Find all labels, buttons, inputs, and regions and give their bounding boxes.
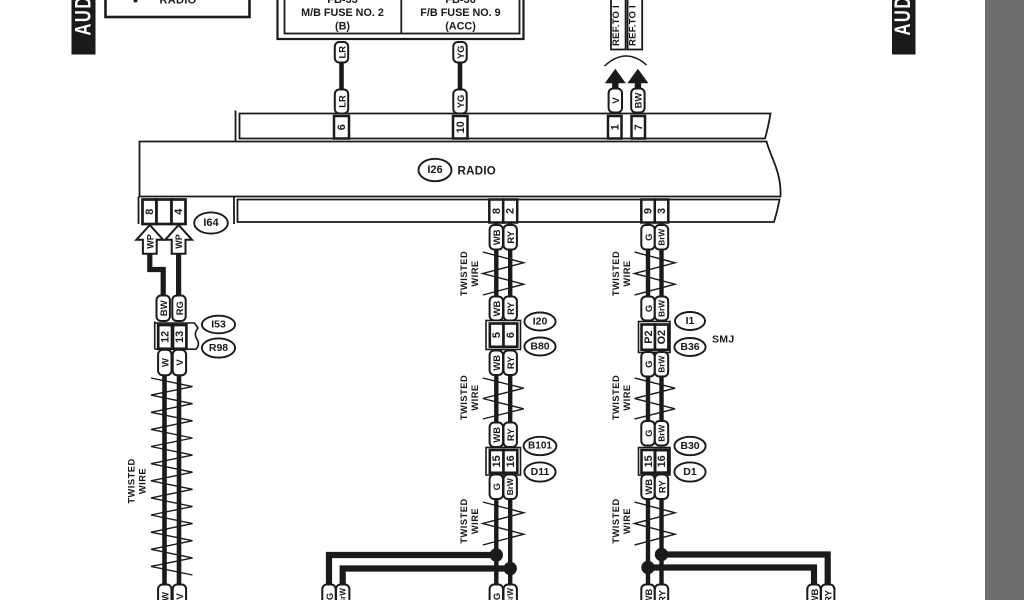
svg-text:I20: I20 [533,316,548,328]
svg-text:RY: RY [823,589,834,600]
svg-text:R98: R98 [209,342,228,354]
svg-text:BrW: BrW [506,478,515,495]
svg-text:16: 16 [656,455,668,467]
svg-text:TWISTED: TWISTED [459,498,469,543]
svg-text:G: G [491,483,502,490]
svg-text:BrW: BrW [657,229,666,246]
svg-text:LR: LR [336,95,347,108]
svg-text:TWISTED: TWISTED [611,251,621,296]
svg-text:WB: WB [643,588,654,600]
svg-text:I64: I64 [203,217,219,229]
svg-text:FB-36: FB-36 [445,0,476,6]
svg-text:V: V [174,359,185,366]
svg-text:12: 12 [160,331,172,343]
svg-text:15: 15 [643,455,655,467]
svg-text:13: 13 [174,331,186,343]
svg-text:AUD: AUD [891,0,916,36]
svg-text:B101: B101 [528,441,552,452]
svg-text:B80: B80 [530,341,549,353]
svg-text:RY: RY [505,428,516,441]
svg-text:G: G [643,361,654,368]
svg-text:WIRE: WIRE [470,260,480,286]
svg-text:F/B FUSE NO. 9: F/B FUSE NO. 9 [420,7,500,19]
svg-text:B30: B30 [680,440,699,452]
svg-text:6: 6 [336,124,348,130]
svg-text:G: G [643,305,654,312]
svg-text:TWISTED: TWISTED [611,498,621,543]
svg-text:WIRE: WIRE [622,508,632,534]
svg-text:I26: I26 [427,164,442,176]
svg-text:10: 10 [455,121,467,133]
svg-text:RY: RY [505,301,516,314]
svg-text:FB-33: FB-33 [327,0,358,6]
svg-text:(ACC): (ACC) [445,21,476,33]
svg-text:TWISTED: TWISTED [459,375,469,420]
svg-text:BrW: BrW [657,425,666,442]
svg-text:WIRE: WIRE [470,384,480,410]
svg-text:16: 16 [505,455,517,467]
svg-text:WIRE: WIRE [622,260,632,286]
svg-text:G: G [643,430,654,437]
svg-text:YG: YG [455,95,466,109]
svg-text:G: G [643,234,654,241]
svg-text:P2: P2 [643,331,655,344]
svg-text:RY: RY [656,480,667,493]
svg-text:BrW: BrW [506,588,515,600]
svg-text:G: G [491,593,502,600]
svg-text:15: 15 [491,455,503,467]
svg-text:4: 4 [173,209,185,215]
svg-text:W: W [160,358,171,367]
svg-text:RY: RY [505,230,516,243]
svg-text:5: 5 [491,332,503,338]
svg-text:RY: RY [505,356,516,369]
svg-text:WB: WB [491,355,502,371]
svg-text:V: V [174,593,185,600]
svg-text:WB: WB [491,229,502,245]
svg-text:V: V [610,97,621,104]
svg-text:8: 8 [144,209,156,215]
svg-text:WIRE: WIRE [622,384,632,410]
svg-text:BW: BW [158,300,169,316]
svg-text:BrW: BrW [657,300,666,317]
svg-text:BrW: BrW [339,588,348,600]
svg-text:D1: D1 [683,466,697,478]
svg-text:RADIO: RADIO [458,165,497,177]
svg-text:LR: LR [336,46,347,59]
svg-text:REF.TO I: REF.TO I [627,5,638,46]
svg-text:8: 8 [491,208,503,214]
svg-text:6: 6 [505,332,517,338]
svg-text:3: 3 [656,208,668,214]
svg-text:D11: D11 [531,466,550,478]
svg-text:RG: RG [174,301,185,315]
svg-text:WIRE: WIRE [138,468,148,494]
svg-text:I53: I53 [211,319,226,331]
svg-text:REF.TO I: REF.TO I [611,5,622,46]
svg-text:WIRE: WIRE [470,508,480,534]
svg-text:WB: WB [809,588,820,600]
svg-text:O2: O2 [656,330,668,344]
svg-text:W: W [160,592,171,600]
svg-text:WB: WB [643,479,654,495]
svg-text:7: 7 [633,124,645,130]
svg-text:WP: WP [145,234,155,249]
svg-text:WB: WB [491,300,502,316]
svg-text:BW: BW [633,93,644,109]
svg-text:I1: I1 [686,315,695,327]
svg-text:WP: WP [174,234,184,249]
svg-text:RY: RY [656,589,667,600]
svg-text:(B): (B) [335,21,350,33]
svg-text:G: G [324,593,335,600]
svg-text:RADIO: RADIO [160,0,197,7]
svg-text:AUD: AUD [71,0,96,36]
svg-text:TWISTED: TWISTED [611,375,621,420]
svg-text:B36: B36 [680,341,699,353]
svg-text:TWISTED: TWISTED [459,251,469,296]
svg-text:2: 2 [505,208,517,214]
svg-text:TWISTED: TWISTED [127,458,137,503]
svg-text:9: 9 [643,208,655,214]
svg-text:1: 1 [609,124,621,130]
svg-text:BrW: BrW [657,356,666,373]
svg-text:SMJ: SMJ [712,334,735,346]
svg-text:YG: YG [455,45,466,59]
svg-text:M/B FUSE NO. 2: M/B FUSE NO. 2 [301,7,384,19]
svg-text:WB: WB [491,427,502,443]
